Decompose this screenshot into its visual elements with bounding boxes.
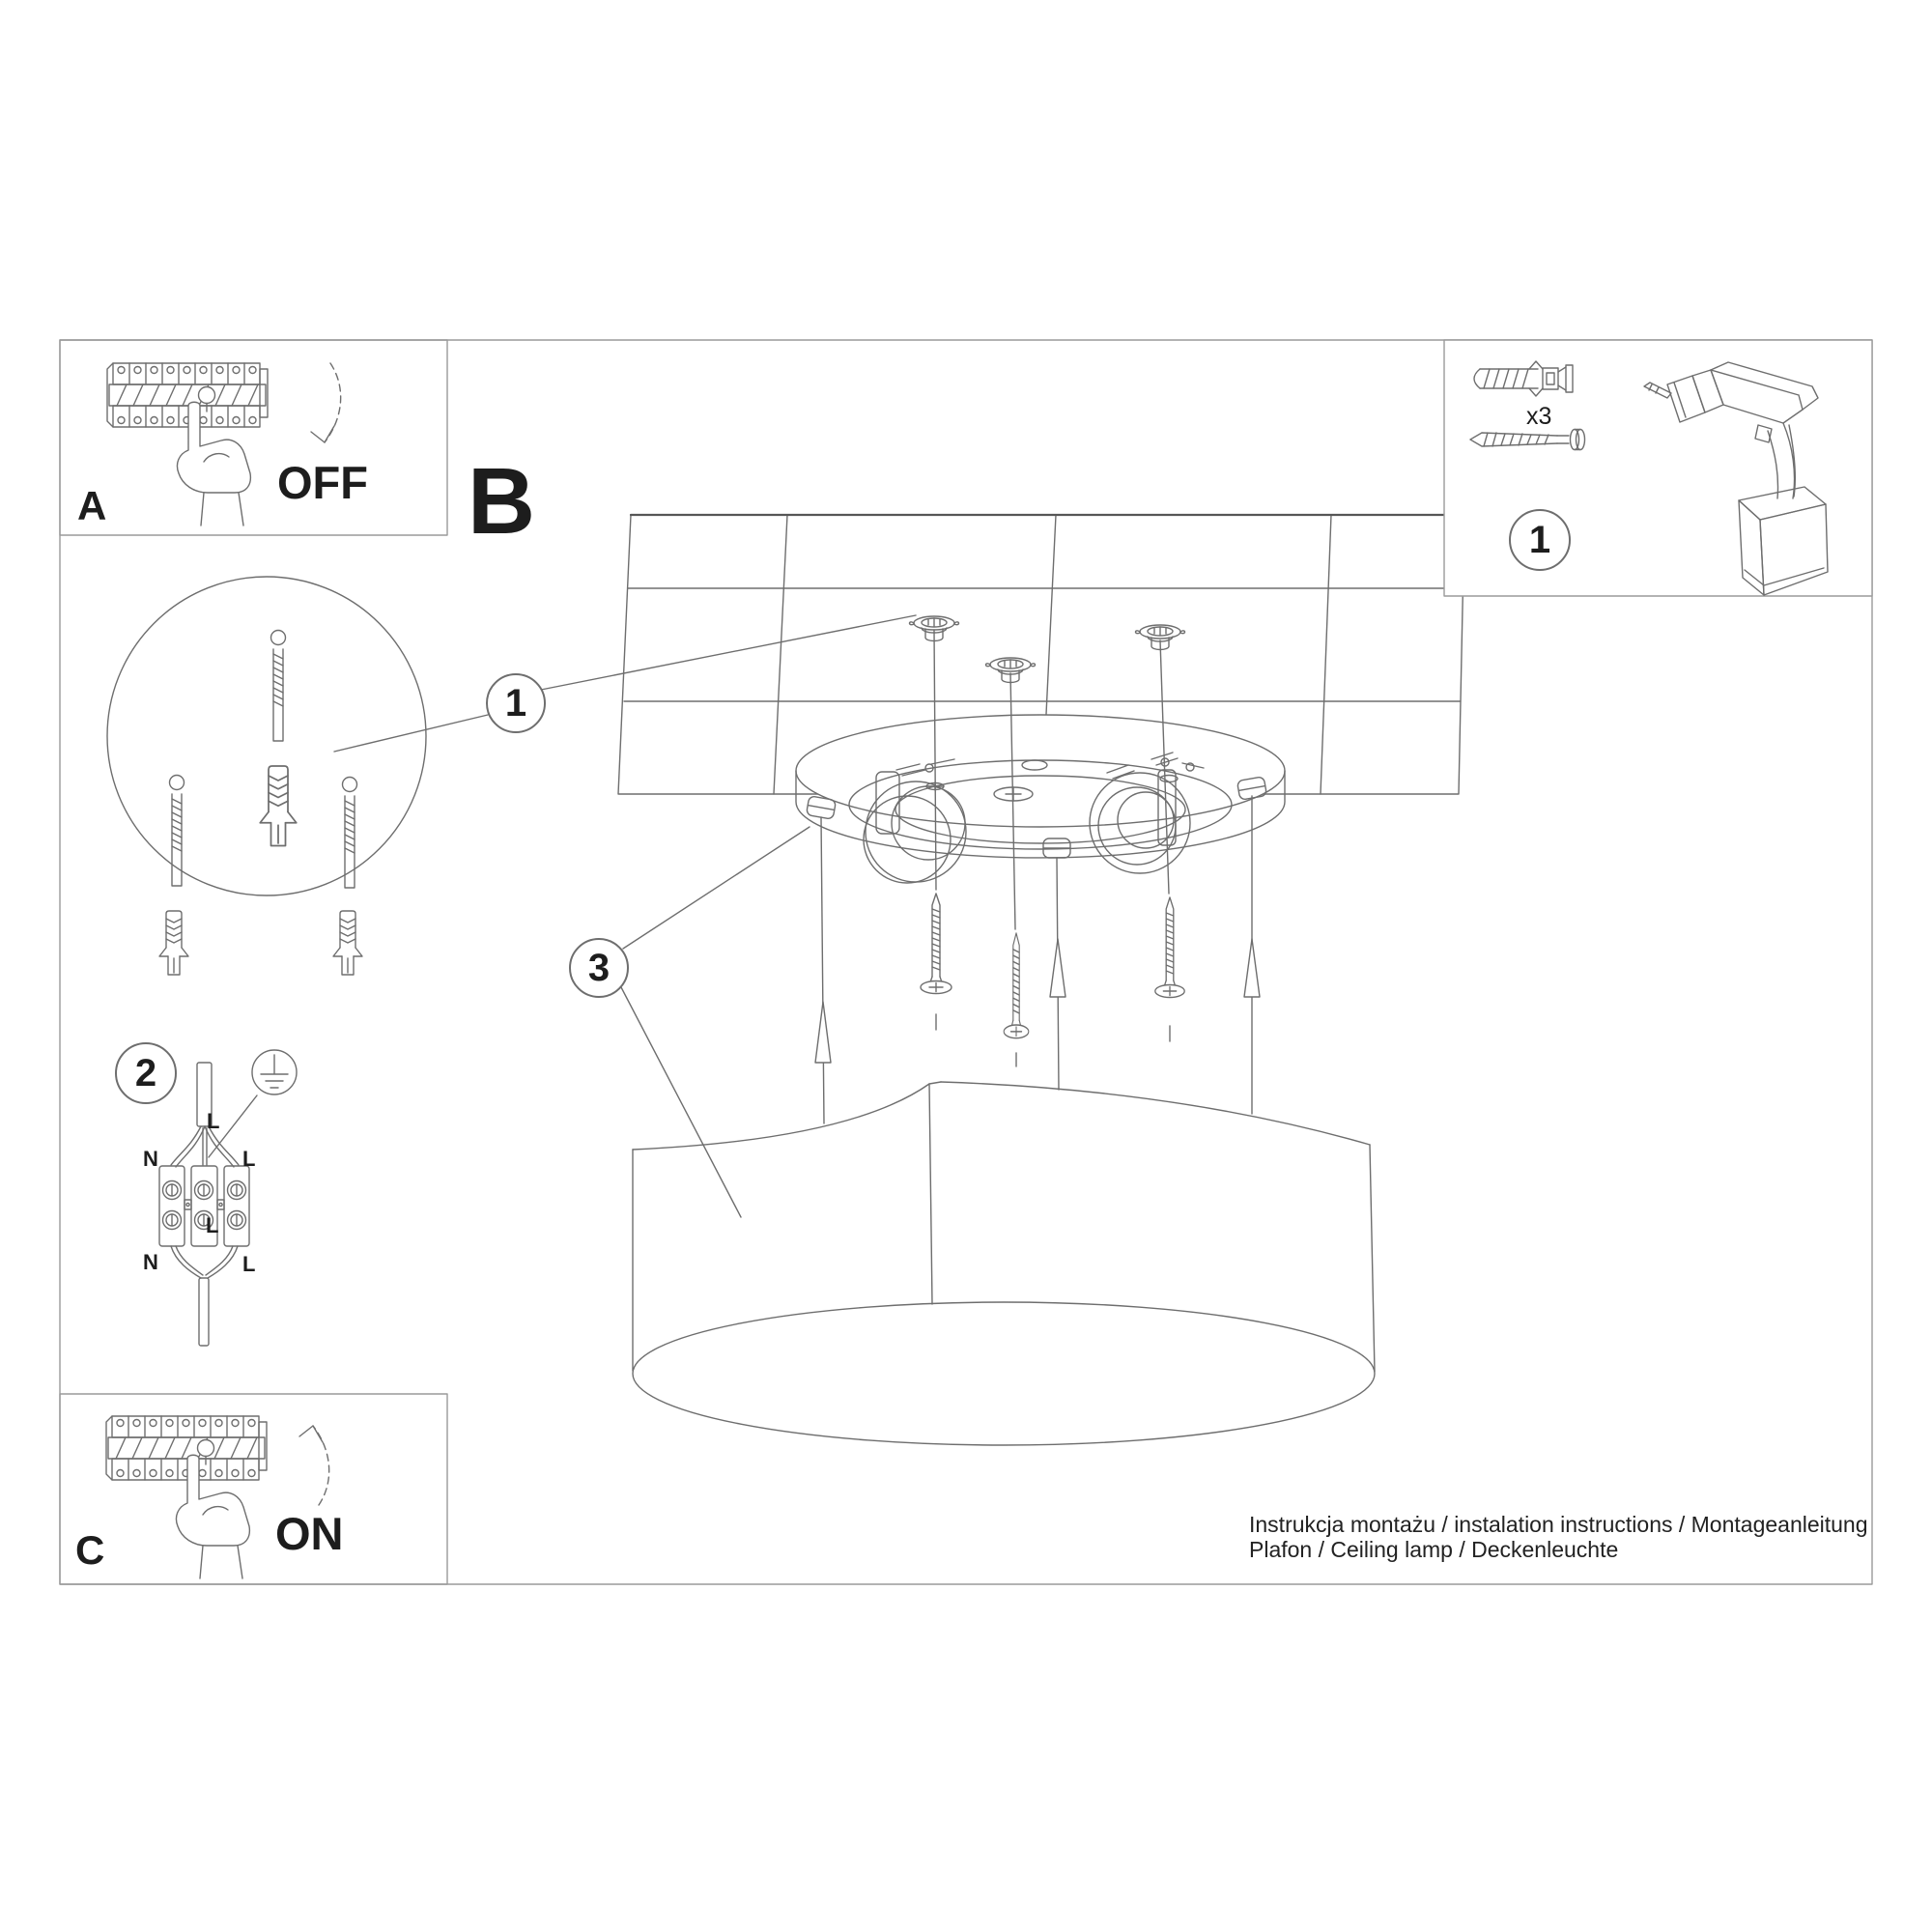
power-on-panel [60, 1394, 447, 1584]
wiring-label-neutral-bottom: N [143, 1252, 158, 1273]
callout-3-leader [621, 827, 810, 1217]
instruction-sheet: A OFF B C ON 1 3 2 1 x3 L N L L N L Inst… [0, 0, 1932, 1932]
panel-a-action: OFF [277, 460, 368, 505]
footer-caption: Instrukcja montażu / instalation instruc… [1249, 1512, 1868, 1562]
footer-line-2: Plafon / Ceiling lamp / Deckenleuchte [1249, 1537, 1868, 1562]
section-b-label: B [468, 454, 535, 548]
panel-c-label: C [75, 1530, 104, 1571]
breaker-strip-icon [106, 1416, 267, 1578]
wiring-diagram [159, 1050, 297, 1346]
diagram-canvas [0, 0, 1932, 1932]
wiring-label-line-top: L [242, 1149, 255, 1170]
callout-anchors-detail: 1 [486, 673, 546, 733]
callout-wiring: 2 [115, 1042, 177, 1104]
lamp-shade-icon [633, 1082, 1375, 1445]
callout-canopy: 3 [569, 938, 629, 998]
wiring-label-neutral-top: N [143, 1149, 158, 1170]
wiring-label-line-mid: L [206, 1215, 218, 1236]
arrow-up-icon [299, 1426, 329, 1505]
kit-quantity-label: x3 [1526, 405, 1551, 429]
anchors-detail-icon [107, 577, 426, 975]
mounting-plate-icon [796, 715, 1285, 883]
breaker-strip-icon [107, 363, 268, 526]
arrow-down-icon [311, 363, 341, 442]
kit-panel [1444, 340, 1872, 596]
wiring-label-incoming-line: L [207, 1111, 219, 1132]
ground-icon [252, 1050, 297, 1094]
panel-c-action: ON [275, 1511, 344, 1556]
kit-callout: 1 [1509, 509, 1571, 571]
footer-line-1: Instrukcja montażu / instalation instruc… [1249, 1512, 1868, 1537]
wiring-label-line-bottom: L [242, 1254, 255, 1275]
power-off-panel [60, 340, 447, 535]
terminal-block-icon [159, 1166, 249, 1246]
panel-a-label: A [77, 486, 106, 526]
